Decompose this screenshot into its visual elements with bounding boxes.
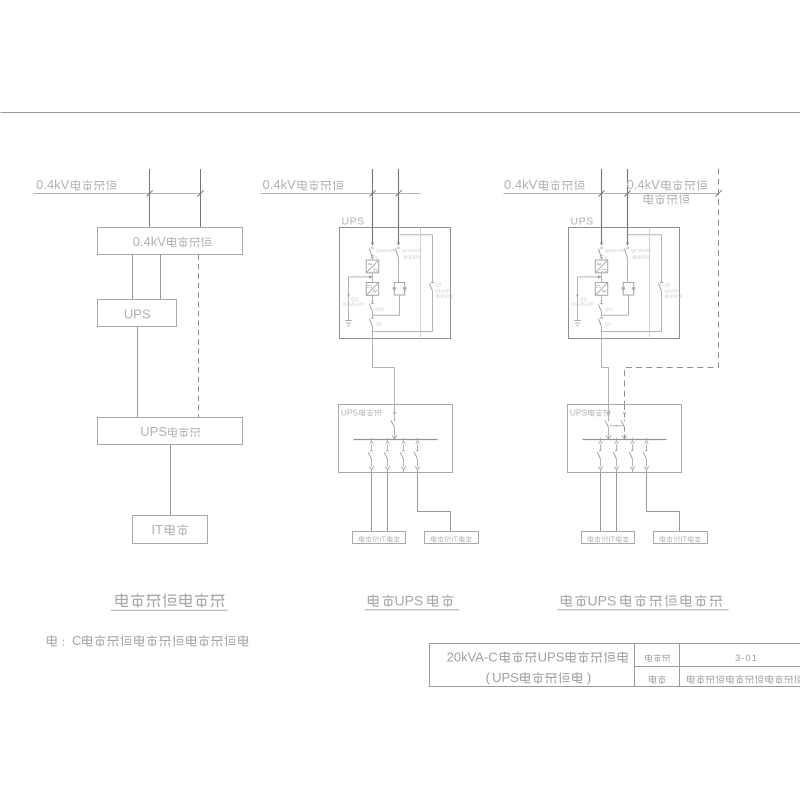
svg-text:UPS: UPS [492,670,519,685]
svg-text:UPS: UPS [342,216,365,228]
svg-text:0.4kV: 0.4kV [504,177,538,192]
svg-text:Q2 63A/3P: Q2 63A/3P [402,248,423,253]
svg-text:0.4kV: 0.4kV [133,234,167,249]
svg-text:20kVA-C: 20kVA-C [447,649,498,664]
svg-text:C: C [72,633,81,648]
svg-text:0.4kV: 0.4kV [36,177,70,192]
svg-text:IT: IT [380,534,387,543]
svg-text:UPS: UPS [571,216,594,228]
svg-text:Q3: Q3 [436,283,442,288]
svg-text:UPS: UPS [538,649,565,664]
svg-text:): ) [587,670,591,685]
svg-text:IT: IT [681,534,688,543]
svg-text:0.4kV: 0.4kV [263,177,297,192]
svg-text:Q01: Q01 [376,307,385,312]
svg-text:UPS: UPS [124,306,151,321]
svg-text:0.4kV: 0.4kV [627,177,661,192]
svg-text:(: ( [486,670,491,685]
svg-text:63A/3P: 63A/3P [665,289,679,294]
svg-text:Q2 63A/3P: Q2 63A/3P [631,248,652,253]
svg-text:Q4: Q4 [376,322,382,327]
svg-text:Q4: Q4 [605,322,611,327]
svg-text:63A/3P: 63A/3P [436,289,450,294]
svg-text:DC125A/3P: DC125A/3P [571,302,594,307]
svg-text:UPS: UPS [395,592,424,608]
svg-text:Q3: Q3 [665,283,671,288]
svg-text:Q150A/3P: Q150A/3P [605,248,625,253]
svg-text:UPS: UPS [341,408,359,418]
svg-text:IT: IT [452,534,459,543]
svg-text:UPS: UPS [570,408,588,418]
svg-text:Q150A/3P: Q150A/3P [376,248,396,253]
svg-text:Q01: Q01 [605,307,614,312]
svg-text:IT: IT [609,534,616,543]
svg-text:3-01: 3-01 [735,653,758,664]
svg-text:UPS: UPS [588,592,617,608]
svg-text:DC125A/3P: DC125A/3P [342,302,365,307]
svg-text:IT: IT [152,522,164,537]
svg-text:UPS: UPS [140,424,167,439]
